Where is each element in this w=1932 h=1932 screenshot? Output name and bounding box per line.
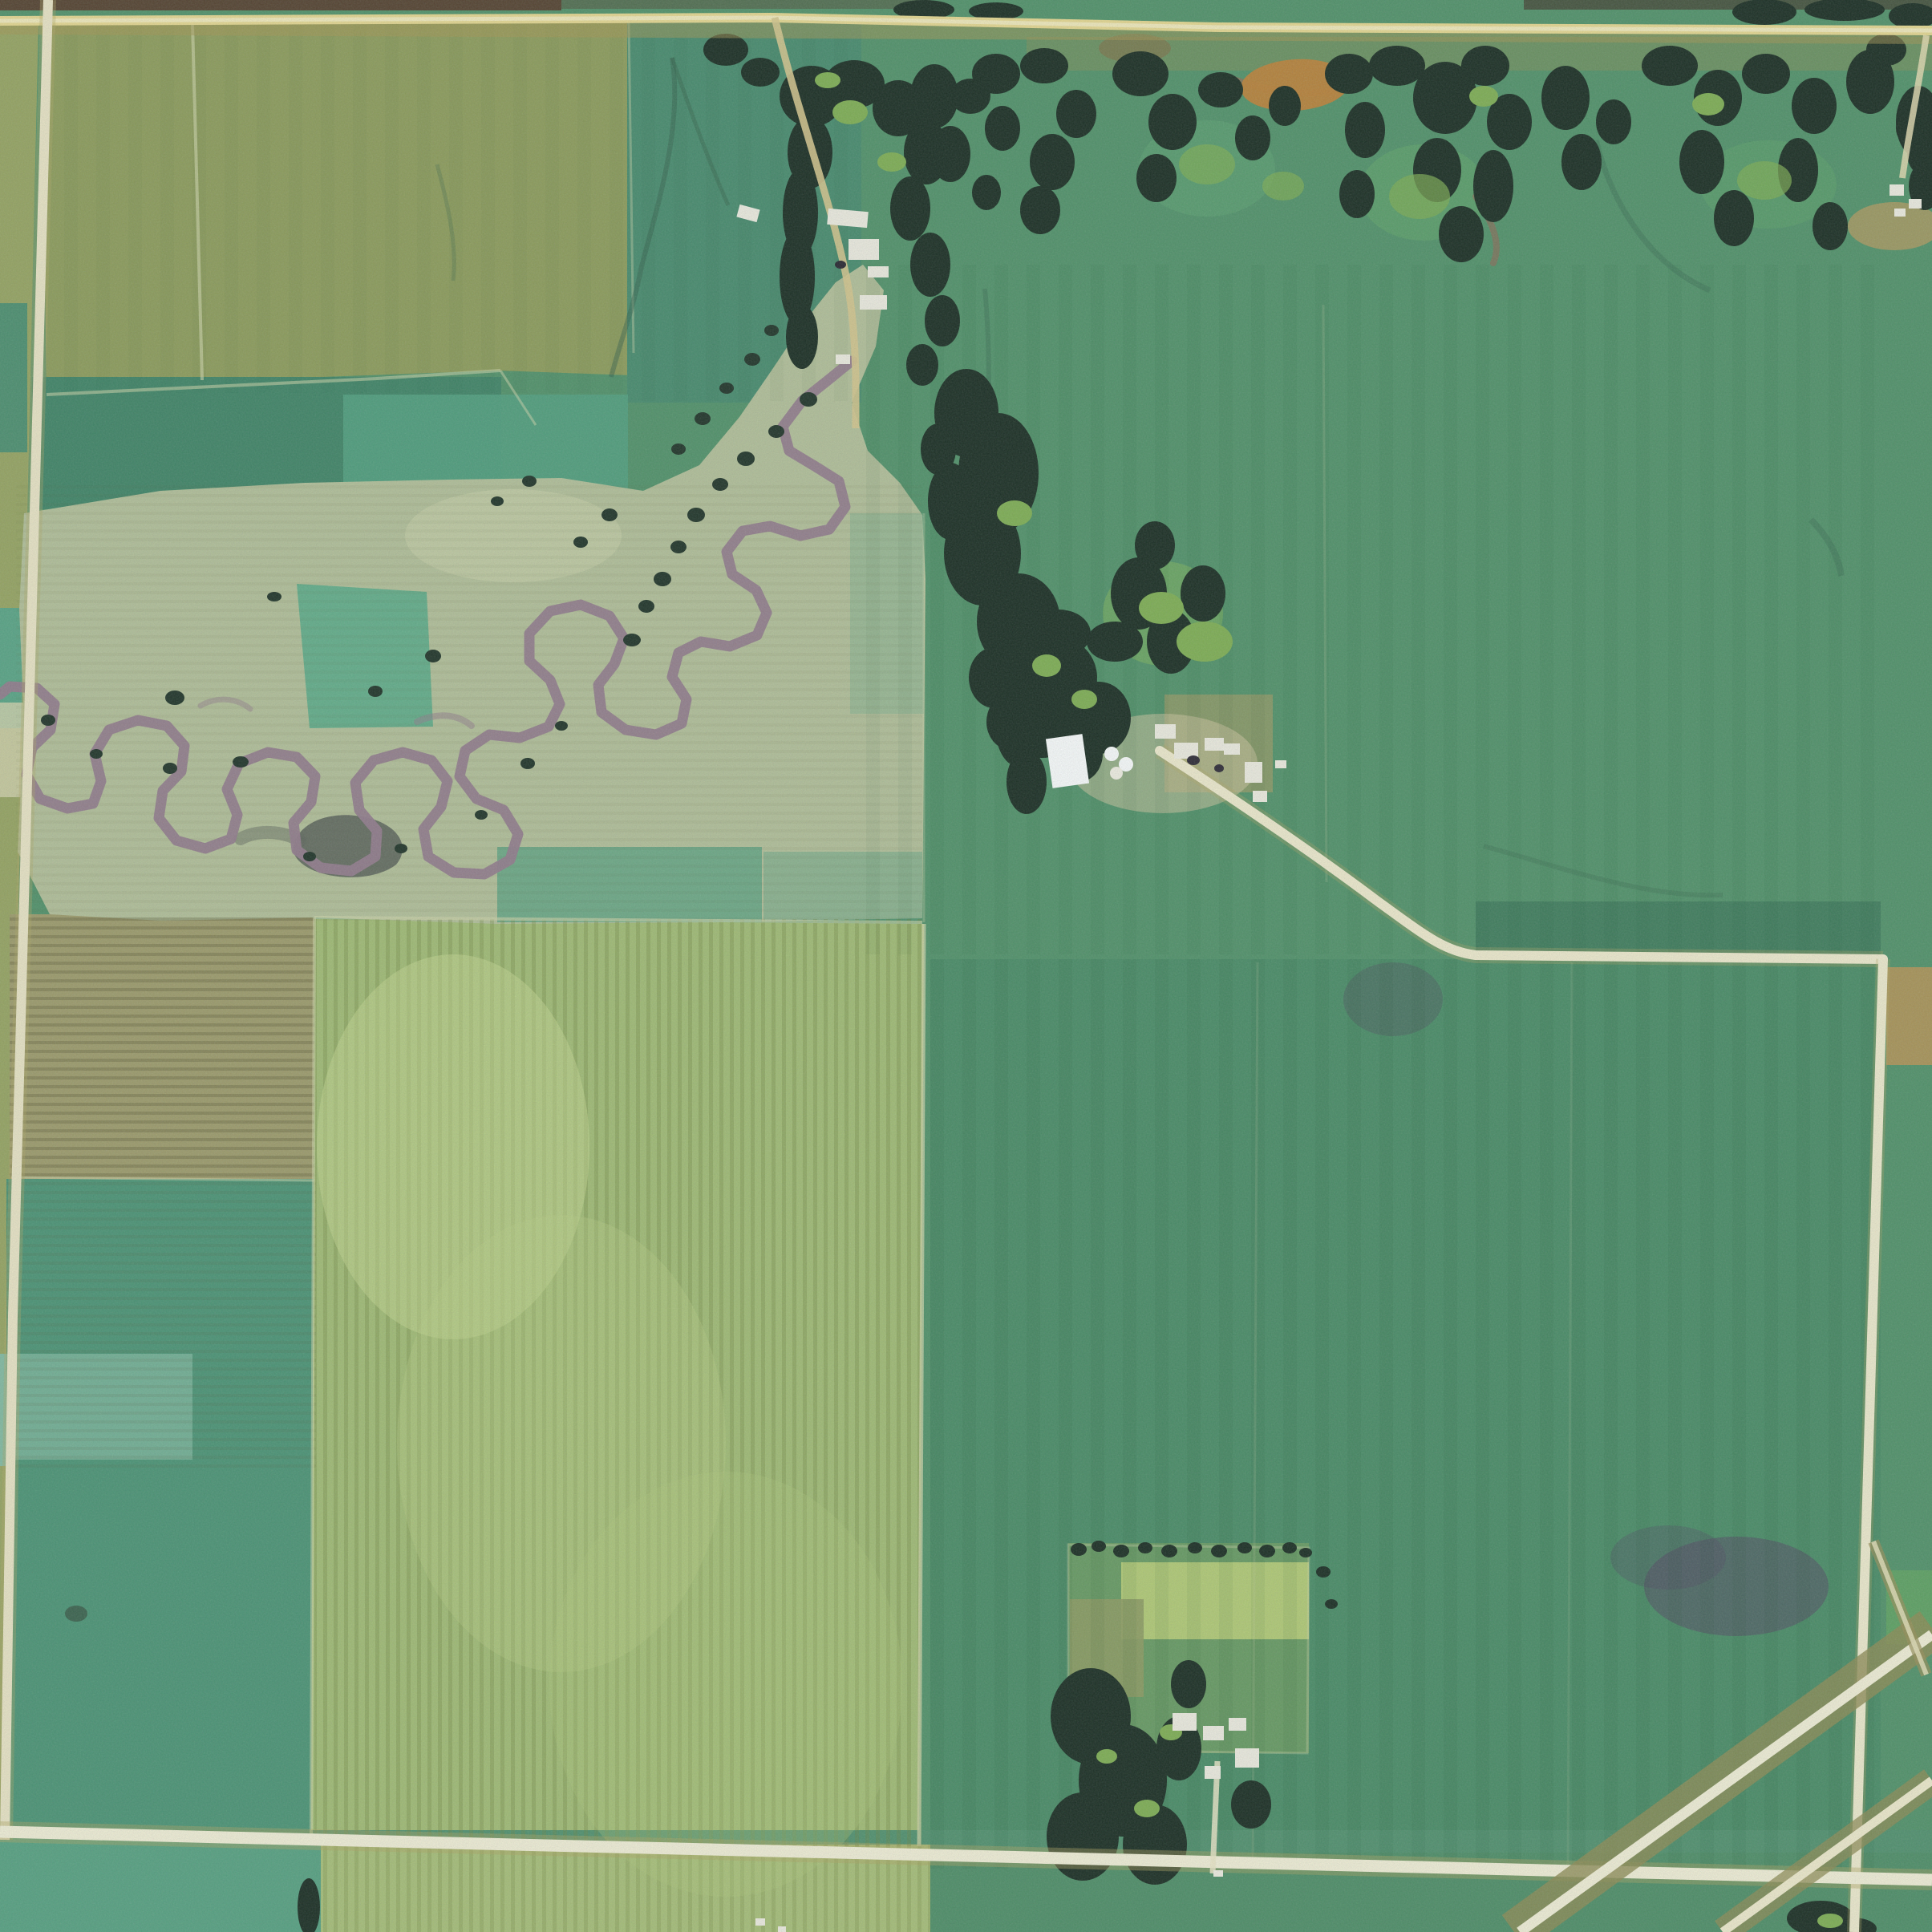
aerial-photo-canvas: Aerial photograph of farmland with a mea… bbox=[0, 0, 1932, 1932]
aerial-photo: Aerial photograph of farmland with a mea… bbox=[0, 0, 1932, 1932]
film-grain-overlay bbox=[0, 0, 1932, 1932]
